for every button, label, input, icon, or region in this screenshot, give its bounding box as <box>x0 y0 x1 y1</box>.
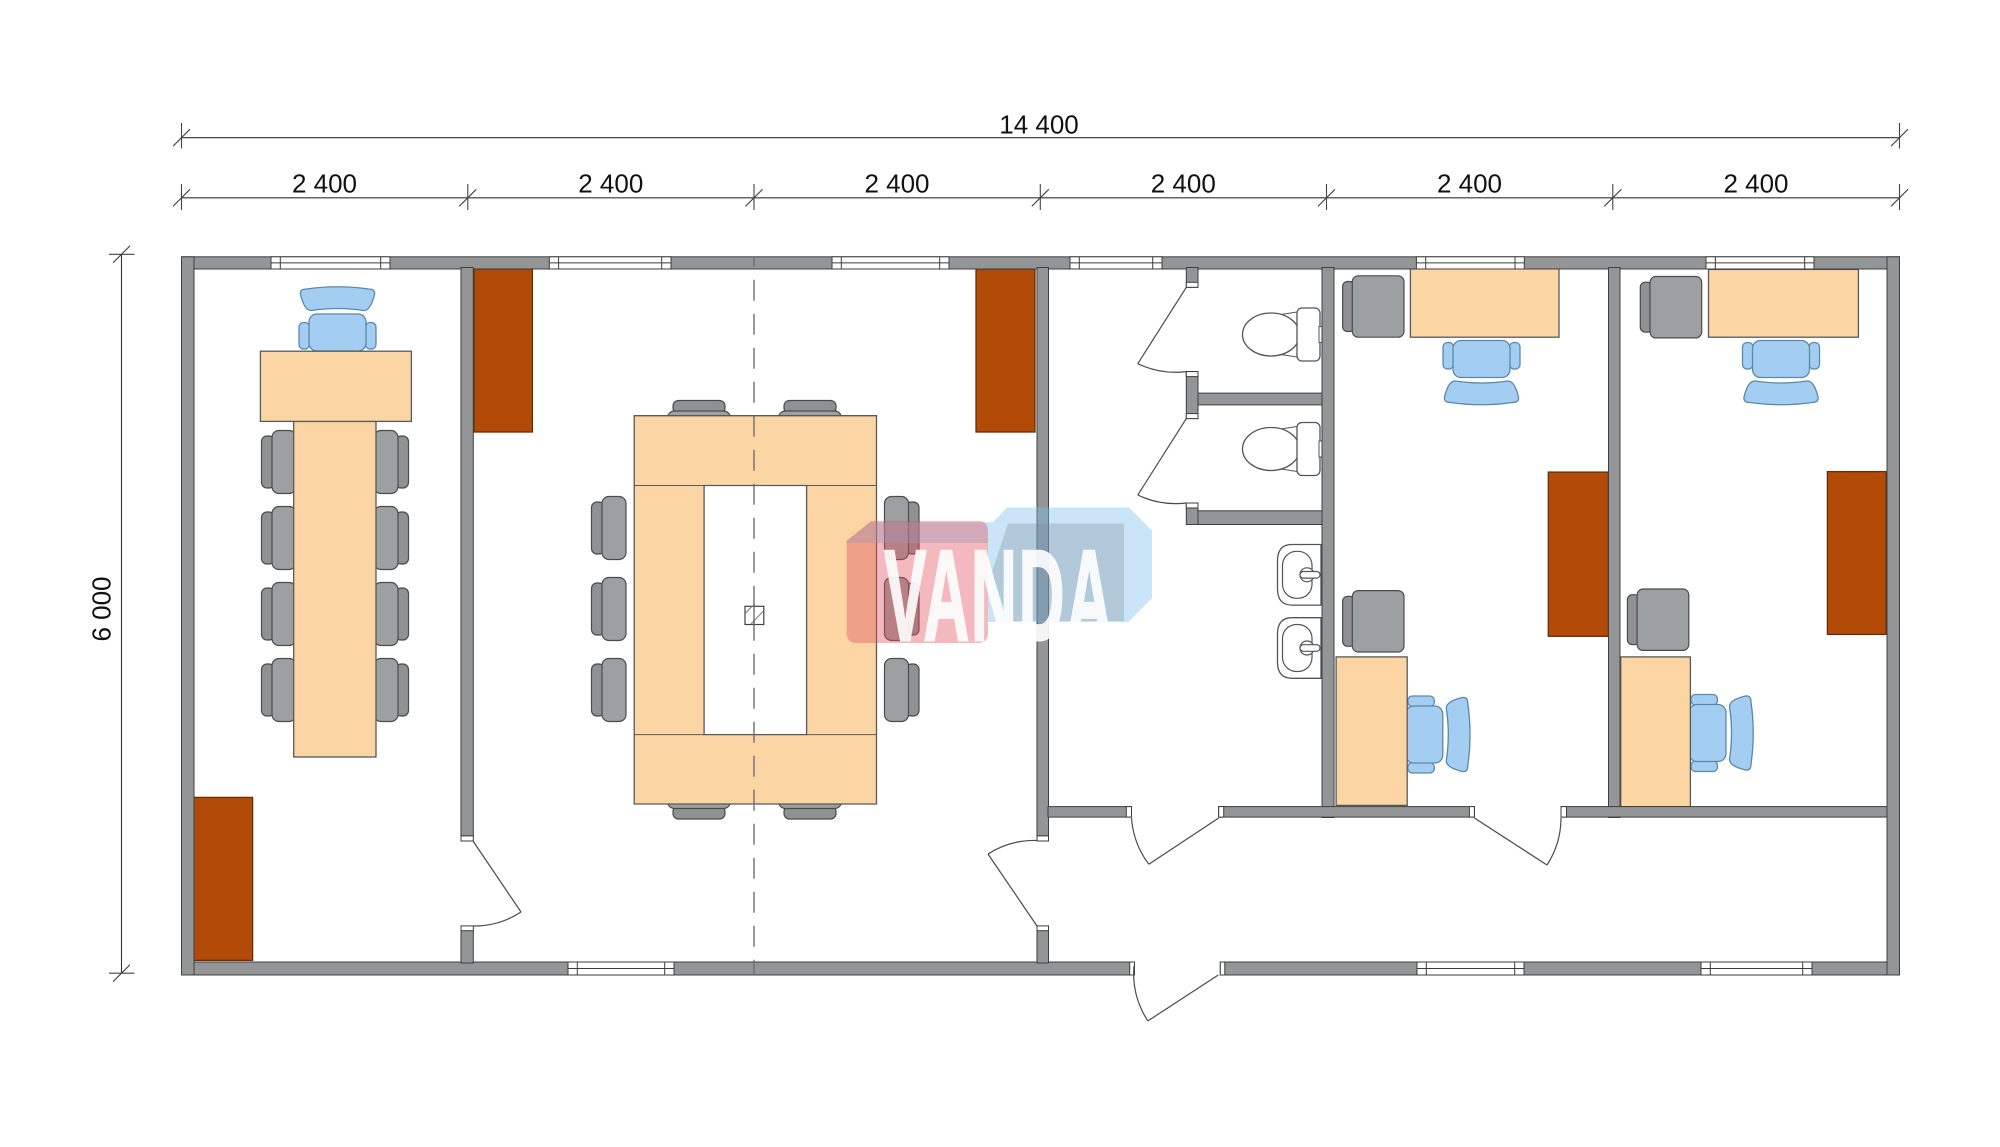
svg-text:6 000: 6 000 <box>87 576 117 641</box>
svg-text:14 400: 14 400 <box>999 110 1079 140</box>
svg-text:2 400: 2 400 <box>1437 169 1502 199</box>
svg-text:2 400: 2 400 <box>864 169 929 199</box>
svg-text:2 400: 2 400 <box>1151 169 1216 199</box>
svg-text:2 400: 2 400 <box>1723 169 1788 199</box>
svg-text:2 400: 2 400 <box>578 169 643 199</box>
svg-text:VANDA: VANDA <box>884 523 1114 668</box>
svg-text:2 400: 2 400 <box>292 169 357 199</box>
